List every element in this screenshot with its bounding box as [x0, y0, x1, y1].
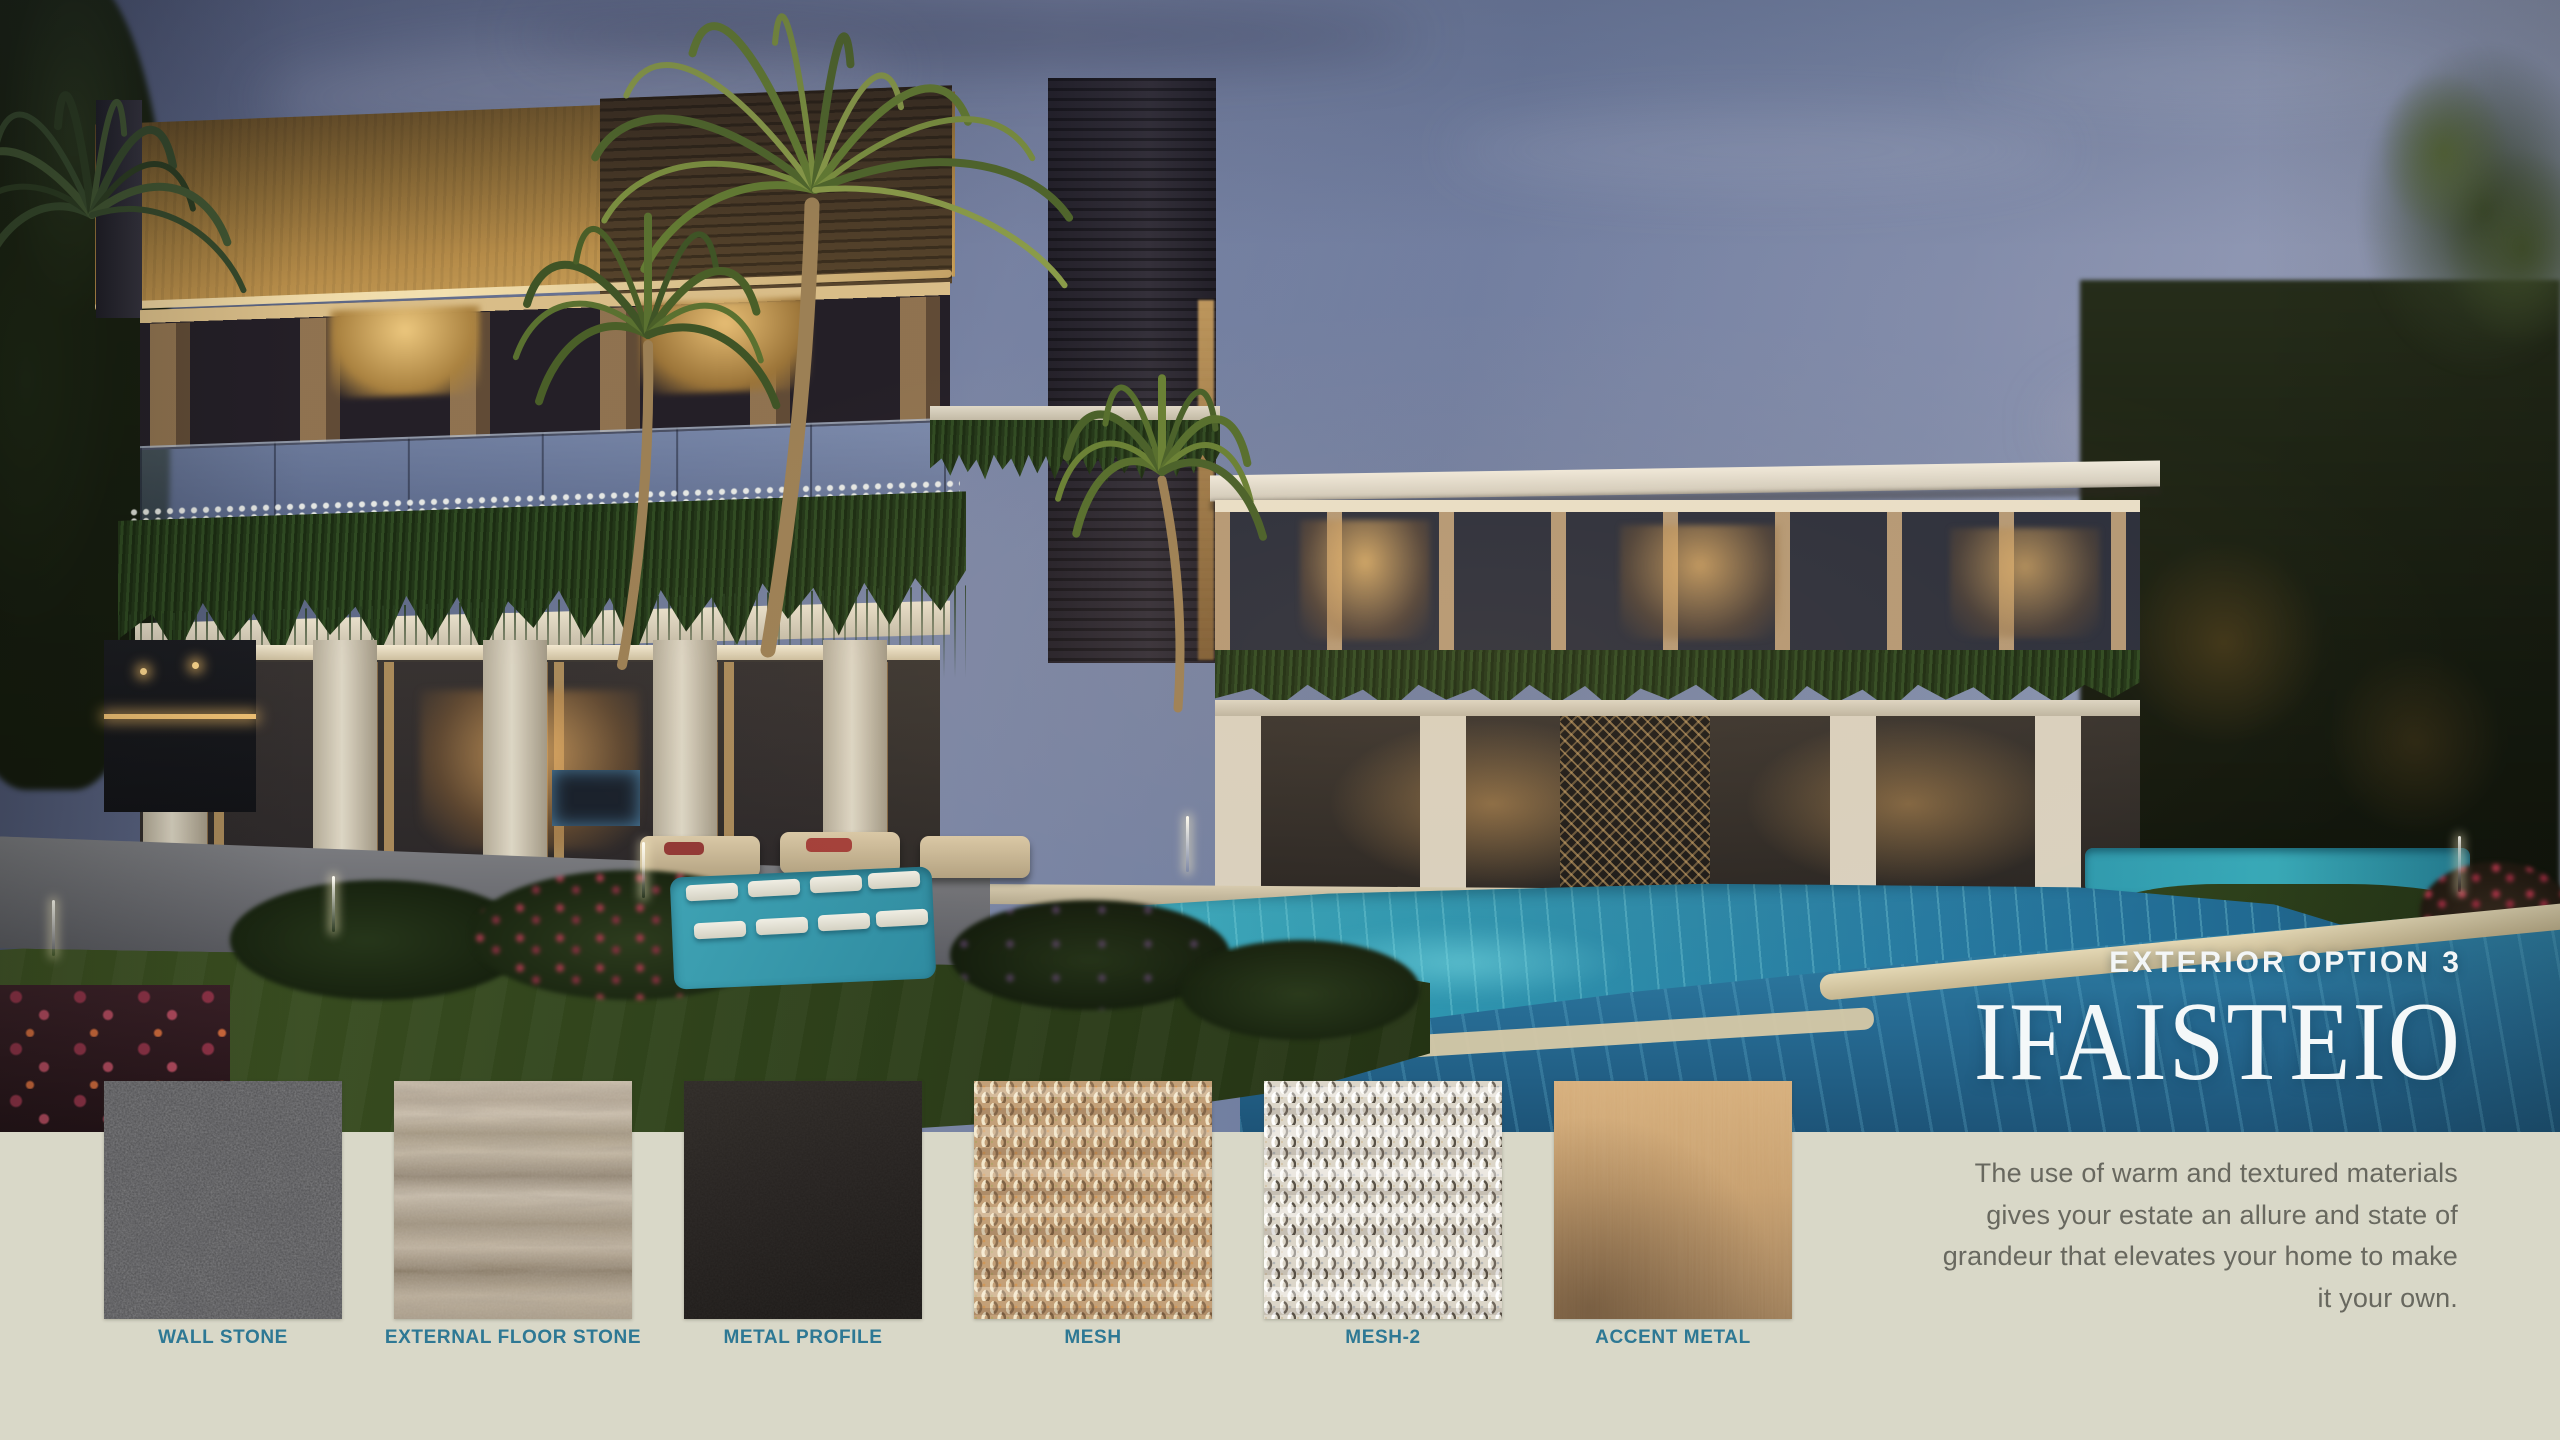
metal-profile-texture	[684, 1081, 922, 1319]
garden-light	[642, 842, 645, 898]
accent-metal-texture	[1554, 1081, 1792, 1319]
glow-window	[1950, 528, 2100, 638]
exterior-option-label: EXTERIOR OPTION 3	[2109, 946, 2462, 980]
garden-bush	[1180, 940, 1420, 1040]
top-right-tree	[2340, 20, 2560, 400]
pool-lounger	[686, 883, 739, 902]
mesh-2-texture	[1264, 1081, 1502, 1319]
swatch-label: EXTERNAL FLOOR STONE	[354, 1327, 672, 1349]
poolside-daybed	[920, 836, 1030, 878]
swatch-mesh: MESH	[974, 1081, 1212, 1319]
outdoor-kitchen	[104, 640, 256, 812]
external-floor-stone-texture	[394, 1081, 632, 1319]
pendant-lamp	[192, 662, 199, 669]
swatch-label: MESH-2	[1224, 1327, 1542, 1349]
swatch-label: MESH	[934, 1327, 1252, 1349]
tv-screen	[552, 770, 640, 826]
swatch-label: ACCENT METAL	[1514, 1327, 1832, 1349]
swatch-mesh-2: MESH-2	[1264, 1081, 1502, 1319]
swatch-external-floor-stone: EXTERNAL FLOOR STONE	[394, 1081, 632, 1319]
villa-photo: EXTERIOR OPTION 3 IFAISTEIO	[0, 0, 2560, 1132]
central-slatted-tower	[1048, 78, 1216, 663]
cloud	[1450, 110, 2070, 190]
swatch-wall-stone: WALL STONE	[104, 1081, 342, 1319]
brochure-page: EXTERIOR OPTION 3 IFAISTEIO The use of w…	[0, 0, 2560, 1440]
garden-light	[2458, 836, 2461, 892]
kitchen-counter-light	[104, 714, 256, 719]
swatch-label: WALL STONE	[64, 1327, 382, 1349]
pool-lounger	[756, 917, 809, 936]
glow-window	[330, 305, 480, 398]
swatch-accent-metal: ACCENT METAL	[1554, 1081, 1792, 1319]
red-cushion	[806, 838, 852, 852]
wall-stone-texture	[104, 1081, 342, 1319]
red-cushion	[664, 842, 704, 855]
bridge-slab	[930, 406, 1220, 422]
cloud	[520, 6, 1420, 66]
garden-light	[52, 900, 55, 956]
pool-lounger	[694, 921, 747, 940]
roof-dark-slats	[600, 85, 952, 297]
right-wing-slab	[1215, 700, 2140, 717]
pool-lounger	[818, 913, 871, 932]
garden-light	[332, 876, 335, 932]
swatch-label: METAL PROFILE	[644, 1327, 962, 1349]
glow-window	[640, 297, 810, 395]
garden-light	[1186, 816, 1189, 872]
swatch-metal-profile: METAL PROFILE	[684, 1081, 922, 1319]
glow-window	[1300, 520, 1430, 640]
pendant-lamp	[140, 668, 147, 675]
glow-window	[1620, 525, 1780, 640]
pool-lounger	[748, 879, 801, 898]
option-name-title: IFAISTEIO	[1974, 986, 2462, 1098]
pool-lounger	[876, 909, 929, 928]
mesh-texture	[974, 1081, 1212, 1319]
hero-titles: EXTERIOR OPTION 3 IFAISTEIO	[1974, 946, 2462, 1086]
chimney	[96, 100, 142, 318]
pool-lounger	[868, 871, 921, 890]
pool-lounger	[810, 875, 863, 894]
decorative-screen	[1560, 716, 1710, 890]
